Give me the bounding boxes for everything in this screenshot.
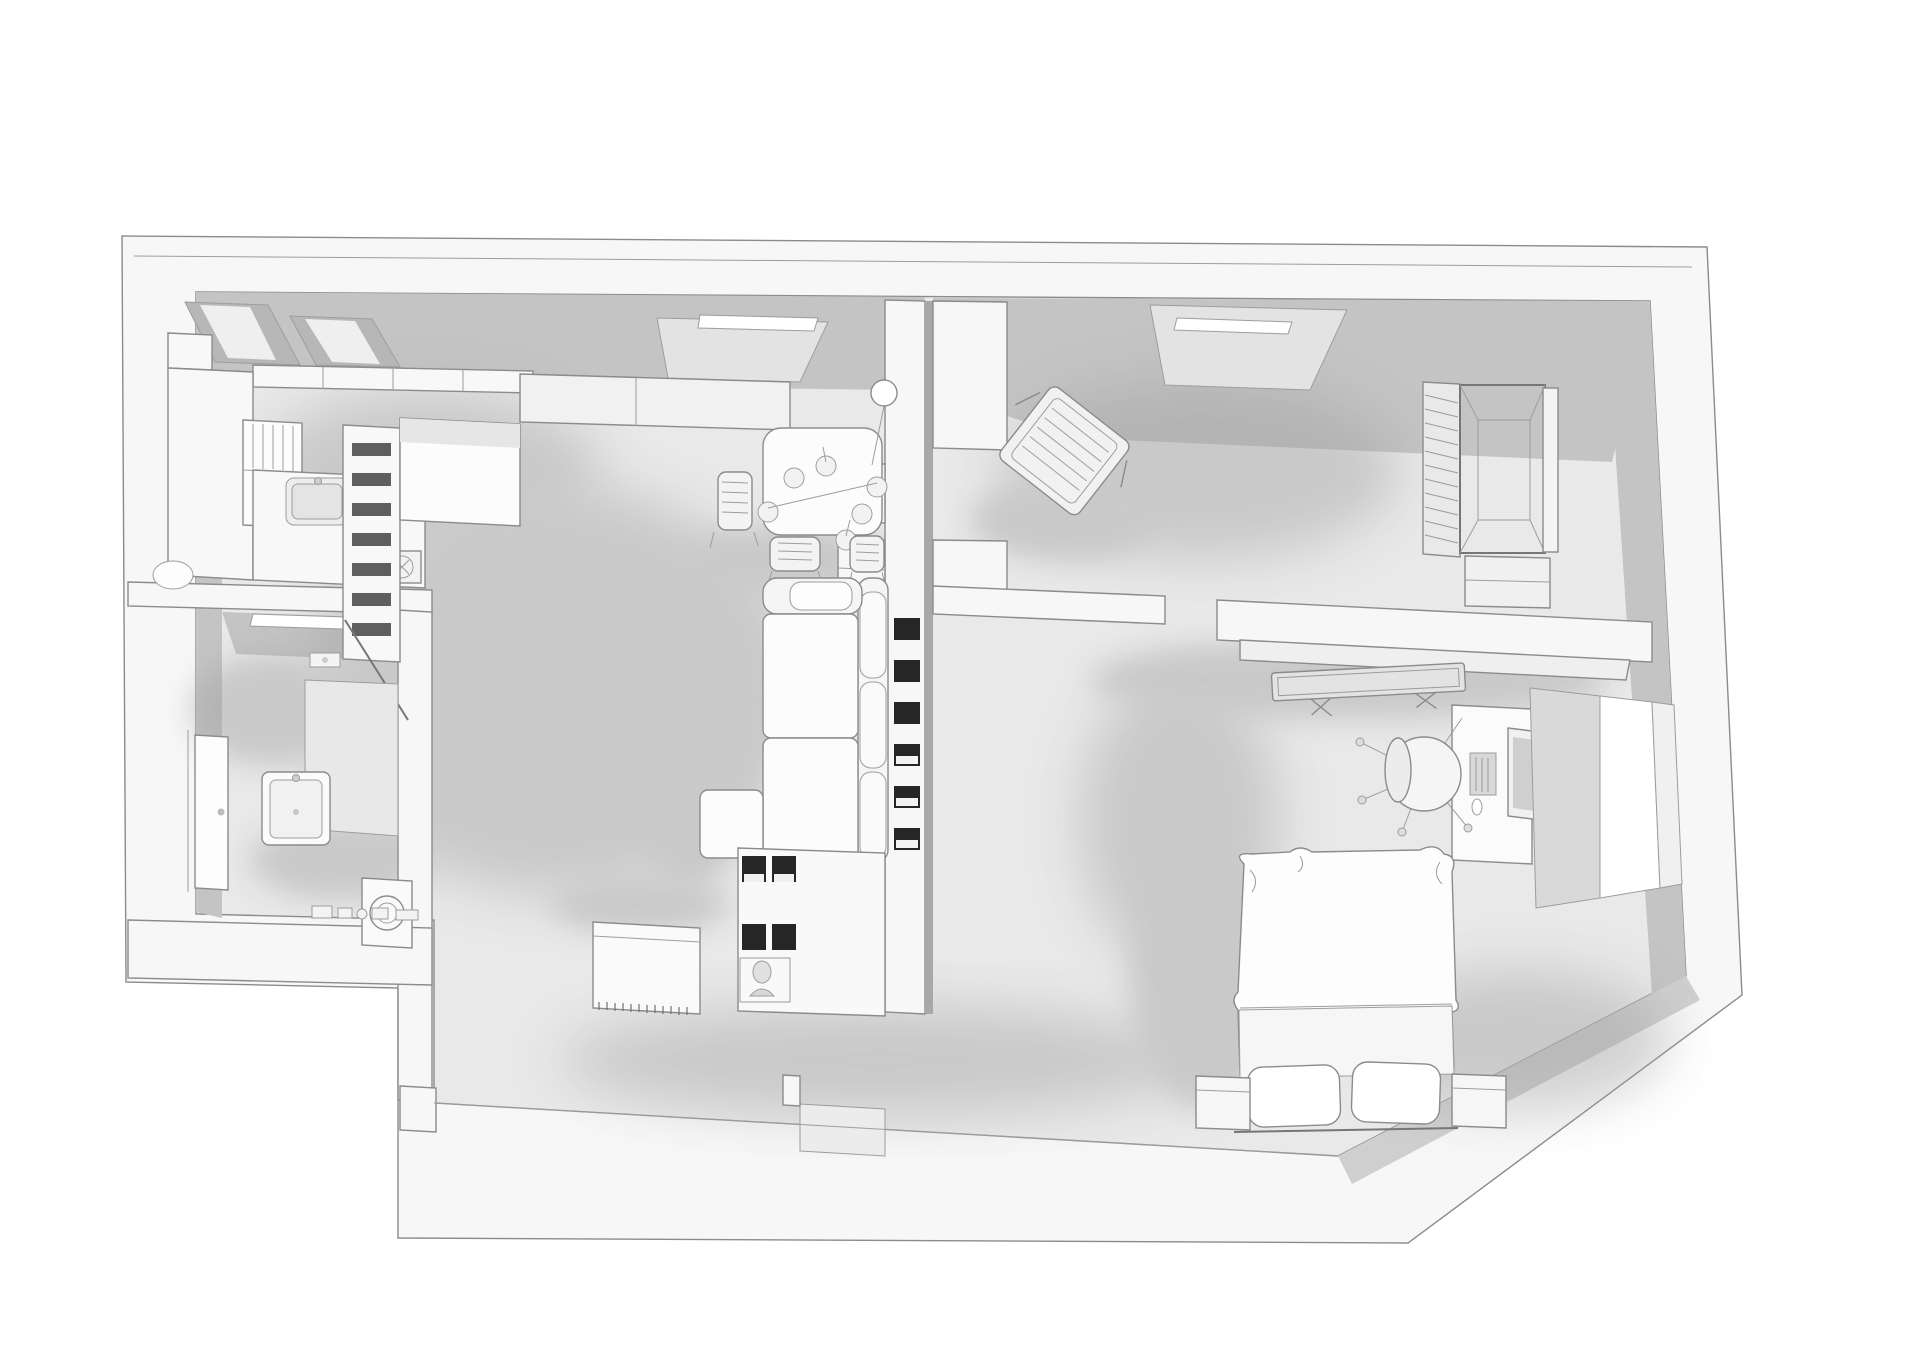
window-glass [1600,696,1660,898]
kettle [153,561,193,589]
wardrobe-side-panel [1543,388,1558,552]
pillow-left [1247,1064,1341,1127]
wall-study-left-upper [933,301,1007,450]
media-cubby-unit [738,848,885,1016]
living-skylight-glass [698,315,818,331]
faucet [315,478,322,485]
window-bay [1530,688,1682,908]
basin-drain [293,809,299,815]
tall-cabinet [168,333,212,370]
window-splay [1530,688,1600,908]
entrance-door-jamb [783,1075,800,1106]
pillow-right [1351,1061,1441,1124]
sofa-seat-2 [763,738,858,860]
mouse [1472,799,1482,815]
nightstand-left [1196,1076,1250,1130]
keyboard [1470,753,1496,795]
chaise [700,790,763,858]
wall-shelf [520,374,790,430]
basin-faucet [293,775,300,782]
wall-study-left-lower [933,540,1007,590]
wall-cubby [885,300,925,1014]
left-counter [168,368,253,580]
sofa-seat-1 [763,614,858,738]
nightstand-right [1452,1074,1506,1128]
wall-lower-left [398,610,432,1102]
door-handle [218,809,225,816]
wall-cubby-gap-shadow [925,301,933,1014]
floorplan-svg [0,0,1920,1358]
entrance-threshold [800,1104,885,1156]
floorplan-render [0,0,1920,1358]
sideboard [593,922,700,1015]
bottom-wall-step [400,1086,436,1132]
chair-backrest [1385,738,1411,802]
